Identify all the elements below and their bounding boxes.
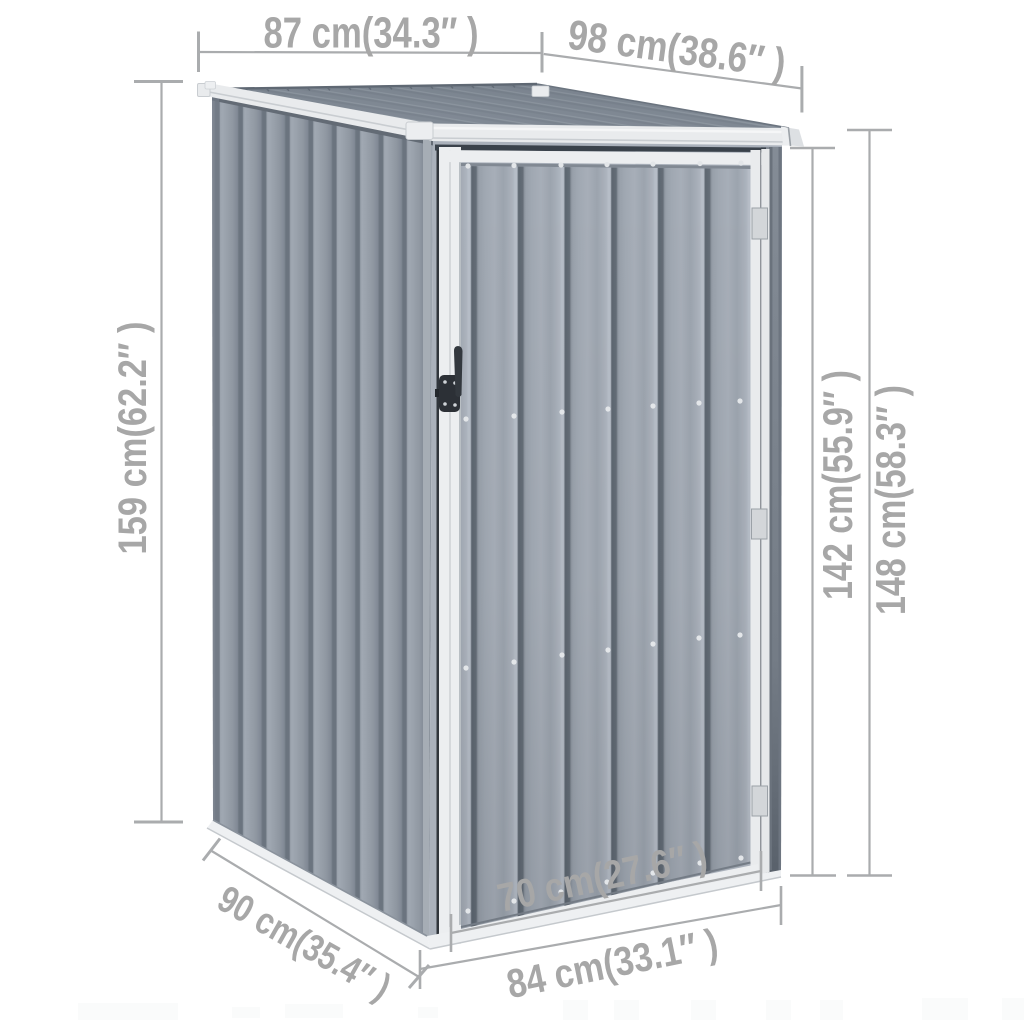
svg-text:142 cm(55.9″ ): 142 cm(55.9″ ) — [814, 370, 861, 600]
svg-text:159 cm(62.2″ ): 159 cm(62.2″ ) — [111, 322, 155, 555]
svg-text:87 cm(34.3″ ): 87 cm(34.3″ ) — [264, 9, 479, 58]
svg-text:148 cm(58.3″ ): 148 cm(58.3″ ) — [867, 385, 914, 615]
